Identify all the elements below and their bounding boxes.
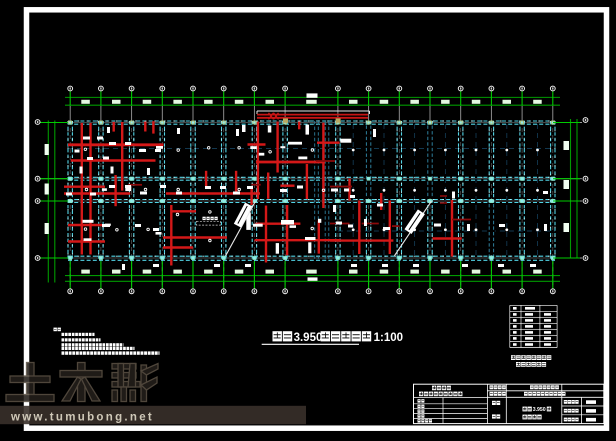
svg-text:www.tumubong.net: www.tumubong.net — [10, 412, 154, 424]
svg-text:3.950: 3.950 — [294, 332, 323, 344]
svg-text:1:100: 1:100 — [374, 332, 403, 344]
svg-text:3.950: 3.950 — [533, 407, 546, 413]
